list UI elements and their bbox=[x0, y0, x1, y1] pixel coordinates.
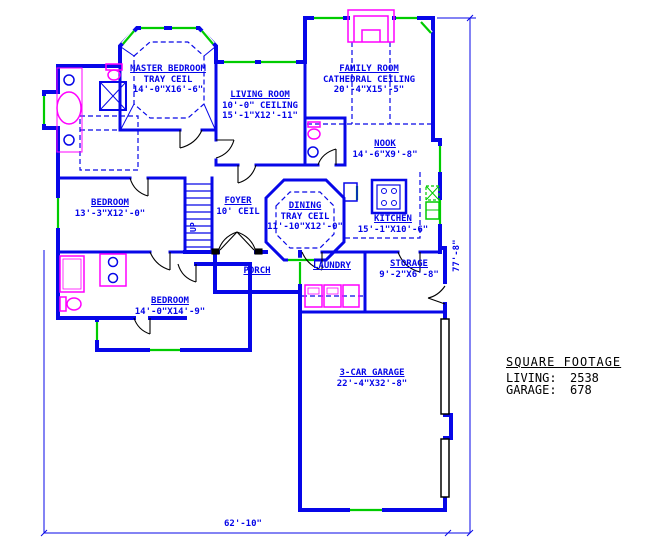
garage-door-2 bbox=[441, 439, 449, 497]
room-name: BEDROOM bbox=[130, 296, 210, 307]
room-name: BEDROOM bbox=[70, 198, 150, 209]
room-name: FAMILY ROOM bbox=[314, 64, 424, 75]
dimension-width-label: 62'-10" bbox=[224, 519, 262, 529]
room-name: MASTER BEDROOM bbox=[128, 64, 208, 75]
hall-bath-counter bbox=[100, 254, 126, 286]
hall-toilet-tank bbox=[60, 297, 66, 311]
room-name: LAUNDRY bbox=[302, 261, 362, 272]
room-label-nook: NOOK 14'-6"X9'-8" bbox=[340, 139, 430, 160]
hall-sink-2 bbox=[109, 274, 118, 283]
stair-treads bbox=[186, 184, 211, 247]
room-detail: 14'-6"X9'-8" bbox=[340, 150, 430, 161]
room-name: LIVING ROOM bbox=[215, 90, 305, 101]
room-name: FOYER bbox=[212, 196, 264, 207]
master-closet-dashed bbox=[80, 116, 138, 170]
dimension-height-label: 77'-8" bbox=[452, 239, 462, 272]
room-detail: 10' CEIL bbox=[212, 207, 264, 218]
room-name: NOOK bbox=[340, 139, 430, 150]
room-label-living-room: LIVING ROOM 10'-0" CEILING 15'-1"X12'-11… bbox=[215, 90, 305, 122]
window-bay-right-diag bbox=[202, 31, 213, 44]
square-footage-block: SQUARE FOOTAGE LIVING: 2538 GARAGE: 678 bbox=[506, 356, 642, 397]
door-bedroom1 bbox=[130, 178, 148, 196]
master-shower-x bbox=[100, 82, 126, 110]
door-living-south bbox=[238, 165, 256, 183]
front-door-jamb-left bbox=[212, 249, 219, 254]
room-label-master-bedroom: MASTER BEDROOM TRAY CEIL 14'-0"X16'-6" bbox=[128, 64, 208, 96]
fireplace bbox=[348, 10, 394, 42]
front-door-jamb-right bbox=[255, 249, 262, 254]
door-bedroom2 bbox=[178, 264, 196, 282]
room-name: DINING bbox=[263, 201, 347, 212]
room-label-bedroom-1: BEDROOM 13'-3"X12'-0" bbox=[70, 198, 150, 219]
square-footage-row-garage: GARAGE: 678 bbox=[506, 384, 642, 397]
room-detail: 10'-0" CEILING bbox=[215, 101, 305, 112]
fireplace-firebox bbox=[354, 16, 388, 42]
square-footage-label: GARAGE: bbox=[506, 384, 570, 397]
door-storage-exterior bbox=[428, 286, 445, 304]
stairs-up-label: UP bbox=[189, 222, 198, 232]
hall-tub-inner bbox=[63, 259, 81, 289]
hall-toilet-bowl bbox=[67, 298, 81, 310]
room-detail: CATHEDRAL CEILING bbox=[314, 75, 424, 86]
room-label-porch: PORCH bbox=[227, 266, 287, 277]
stairs bbox=[186, 184, 211, 247]
laundry-dryer-detail bbox=[327, 288, 338, 294]
range-burner-1 bbox=[382, 189, 387, 194]
room-detail: 20'-4"X15'-5" bbox=[314, 85, 424, 96]
range-burner-3 bbox=[382, 201, 387, 206]
front-door-left-leaf bbox=[220, 232, 237, 250]
room-detail: TRAY CEIL bbox=[263, 212, 347, 223]
room-name: STORAGE bbox=[369, 259, 449, 270]
room-name: PORCH bbox=[227, 266, 287, 277]
room-detail: 15'-1"X10'-6" bbox=[348, 225, 438, 236]
kitchen-appliance-x bbox=[426, 186, 439, 200]
room-detail: 15'-1"X12'-11" bbox=[215, 111, 305, 122]
master-tub bbox=[57, 92, 81, 124]
room-label-laundry: LAUNDRY bbox=[302, 261, 362, 272]
range-burner-4 bbox=[392, 201, 397, 206]
hall-tub bbox=[60, 256, 84, 292]
room-detail: TRAY CEIL bbox=[128, 75, 208, 86]
kitchen-range bbox=[377, 185, 400, 209]
room-detail: 14'-0"X14'-9" bbox=[130, 307, 210, 318]
hall-sink-1 bbox=[109, 258, 118, 267]
master-sink-1 bbox=[64, 75, 74, 85]
room-label-kitchen: KITCHEN 15'-1"X10'-6" bbox=[348, 214, 438, 235]
floor-plan: MASTER BEDROOM TRAY CEIL 14'-0"X16'-6" L… bbox=[0, 0, 648, 558]
powder-sink bbox=[308, 147, 318, 157]
door-powder bbox=[318, 149, 336, 165]
room-label-dining: DINING TRAY CEIL 11'-10"X12'-0" bbox=[263, 201, 347, 233]
window-bay-left-diag bbox=[123, 31, 134, 44]
garage-door-1 bbox=[441, 319, 449, 414]
room-detail: 9'-2"X6'-8" bbox=[369, 270, 449, 281]
door-living-west bbox=[216, 140, 234, 158]
room-label-storage: STORAGE 9'-2"X6'-8" bbox=[369, 259, 449, 280]
square-footage-value: 678 bbox=[570, 384, 642, 397]
range-burner-2 bbox=[392, 189, 397, 194]
room-label-foyer: FOYER 10' CEIL bbox=[212, 196, 264, 217]
room-name: KITCHEN bbox=[348, 214, 438, 225]
window-family-corner-diag bbox=[421, 22, 431, 33]
wall-garage-right-jog bbox=[445, 415, 451, 438]
room-label-garage: 3-CAR GARAGE 22'-4"X32'-8" bbox=[322, 368, 422, 389]
room-label-bedroom-2: BEDROOM 14'-0"X14'-9" bbox=[130, 296, 210, 317]
room-detail: 11'-10"X12'-0" bbox=[263, 222, 347, 233]
master-bath-counter bbox=[57, 68, 82, 152]
door-hall-bath bbox=[150, 252, 170, 270]
room-detail: 14'-0"X16'-6" bbox=[128, 85, 208, 96]
powder-toilet-bowl bbox=[308, 129, 320, 139]
laundry-washer-detail bbox=[308, 288, 319, 294]
square-footage-title: SQUARE FOOTAGE bbox=[506, 356, 642, 369]
garage-doors bbox=[441, 319, 449, 497]
room-label-family-room: FAMILY ROOM CATHEDRAL CEILING 20'-4"X15'… bbox=[314, 64, 424, 96]
master-sink-2 bbox=[64, 135, 74, 145]
door-master bbox=[180, 130, 202, 148]
room-detail: 22'-4"X32'-8" bbox=[322, 379, 422, 390]
front-door-right-leaf bbox=[237, 232, 254, 250]
door-bedroom2-closet bbox=[134, 318, 150, 334]
room-detail: 13'-3"X12'-0" bbox=[70, 209, 150, 220]
wall-powder-room bbox=[305, 118, 345, 165]
master-toilet-bowl bbox=[108, 70, 120, 80]
room-name: 3-CAR GARAGE bbox=[322, 368, 422, 379]
dining-buffet bbox=[344, 183, 357, 201]
